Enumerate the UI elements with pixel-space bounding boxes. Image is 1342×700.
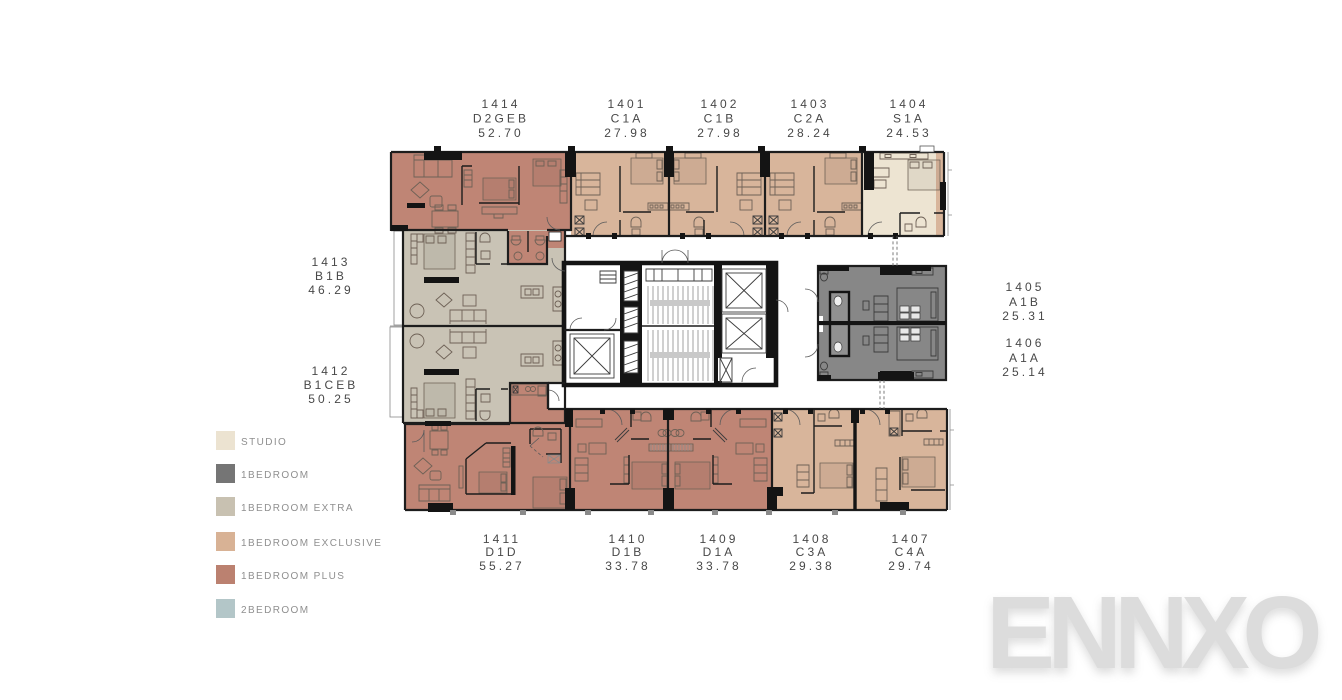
svg-text:1BEDROOM EXCLUSIVE: 1BEDROOM EXCLUSIVE [241,538,382,549]
svg-text:2BEDROOM: 2BEDROOM [241,605,309,616]
svg-text:24.53: 24.53 [886,126,932,140]
svg-text:1405: 1405 [1005,280,1044,294]
svg-text:29.38: 29.38 [789,559,835,573]
svg-text:1412: 1412 [311,364,350,378]
svg-text:A1B: A1B [1009,295,1041,309]
svg-text:1409: 1409 [699,532,738,546]
svg-text:1411: 1411 [483,532,521,546]
svg-text:25.14: 25.14 [1002,365,1048,379]
svg-text:C2A: C2A [794,112,827,126]
svg-text:1406: 1406 [1005,336,1044,350]
svg-text:1407: 1407 [891,532,930,546]
svg-text:C1B: C1B [704,112,737,126]
svg-text:C4A: C4A [895,545,928,559]
svg-text:28.24: 28.24 [787,126,833,140]
svg-text:1402: 1402 [700,97,739,111]
svg-text:33.78: 33.78 [696,559,742,573]
svg-text:1401: 1401 [607,97,646,111]
svg-text:33.78: 33.78 [605,559,651,573]
svg-text:D1A: D1A [703,545,736,559]
svg-text:C3A: C3A [796,545,829,559]
svg-text:1BEDROOM PLUS: 1BEDROOM PLUS [241,571,345,582]
svg-text:D1D: D1D [485,545,518,559]
svg-text:D2GEB: D2GEB [473,112,529,126]
svg-text:1413: 1413 [311,255,350,269]
svg-text:29.74: 29.74 [888,559,934,573]
svg-text:B1CEB: B1CEB [304,378,359,392]
svg-text:46.29: 46.29 [308,283,354,297]
svg-text:C1A: C1A [611,112,644,126]
svg-text:1403: 1403 [790,97,829,111]
svg-text:50.25: 50.25 [308,392,354,406]
svg-text:STUDIO: STUDIO [241,437,287,448]
svg-text:52.70: 52.70 [478,126,524,140]
svg-text:1BEDROOM: 1BEDROOM [241,470,309,481]
svg-text:D1B: D1B [612,545,645,559]
svg-text:1404: 1404 [889,97,928,111]
svg-text:S1A: S1A [893,112,925,126]
svg-text:55.27: 55.27 [479,559,525,573]
svg-text:27.98: 27.98 [697,126,743,140]
svg-text:1410: 1410 [608,532,647,546]
svg-text:1414: 1414 [481,97,520,111]
svg-text:1408: 1408 [792,532,831,546]
svg-text:B1B: B1B [315,269,347,283]
svg-text:27.98: 27.98 [604,126,650,140]
svg-text:A1A: A1A [1009,351,1041,365]
svg-text:1BEDROOM EXTRA: 1BEDROOM EXTRA [241,503,354,514]
svg-text:25.31: 25.31 [1002,309,1048,323]
